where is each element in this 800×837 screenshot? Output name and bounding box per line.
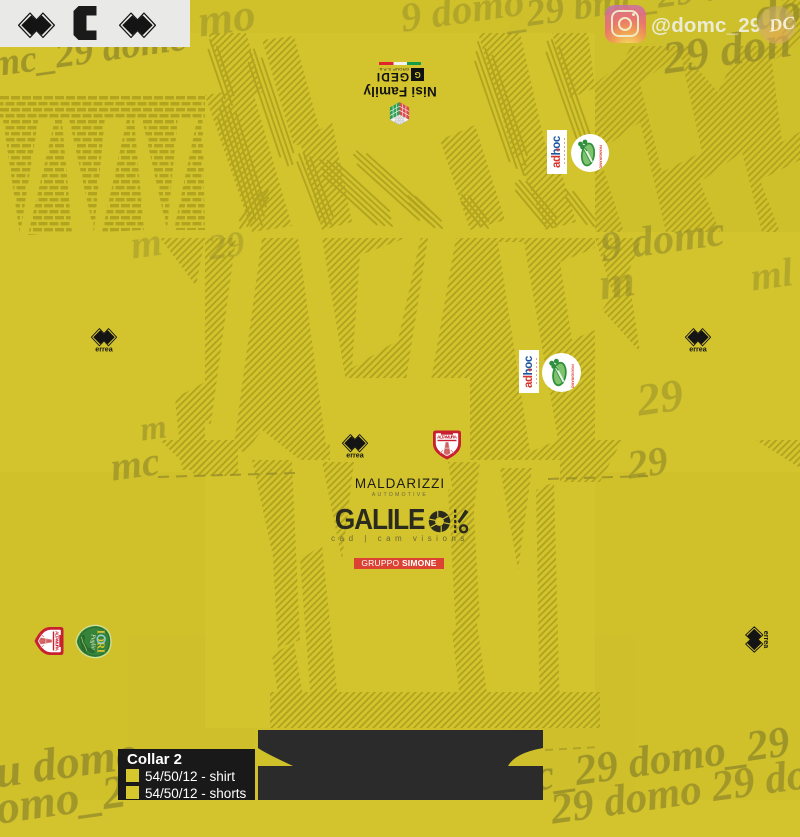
svg-text:errea: errea — [346, 452, 365, 460]
svg-text:errea: errea — [762, 631, 770, 650]
svg-text:errea: errea — [689, 346, 708, 354]
svg-text:ALTAMURA: ALTAMURA — [437, 435, 458, 440]
svg-text:errea: errea — [95, 346, 114, 354]
svg-text:FRANGIRAMO: FRANGIRAMO — [570, 364, 574, 388]
svg-text:FRANGIRAMO: FRANGIRAMO — [599, 145, 603, 169]
svg-text:ALTAMURA: ALTAMURA — [54, 631, 59, 652]
svg-text:Puglia: Puglia — [89, 633, 95, 650]
